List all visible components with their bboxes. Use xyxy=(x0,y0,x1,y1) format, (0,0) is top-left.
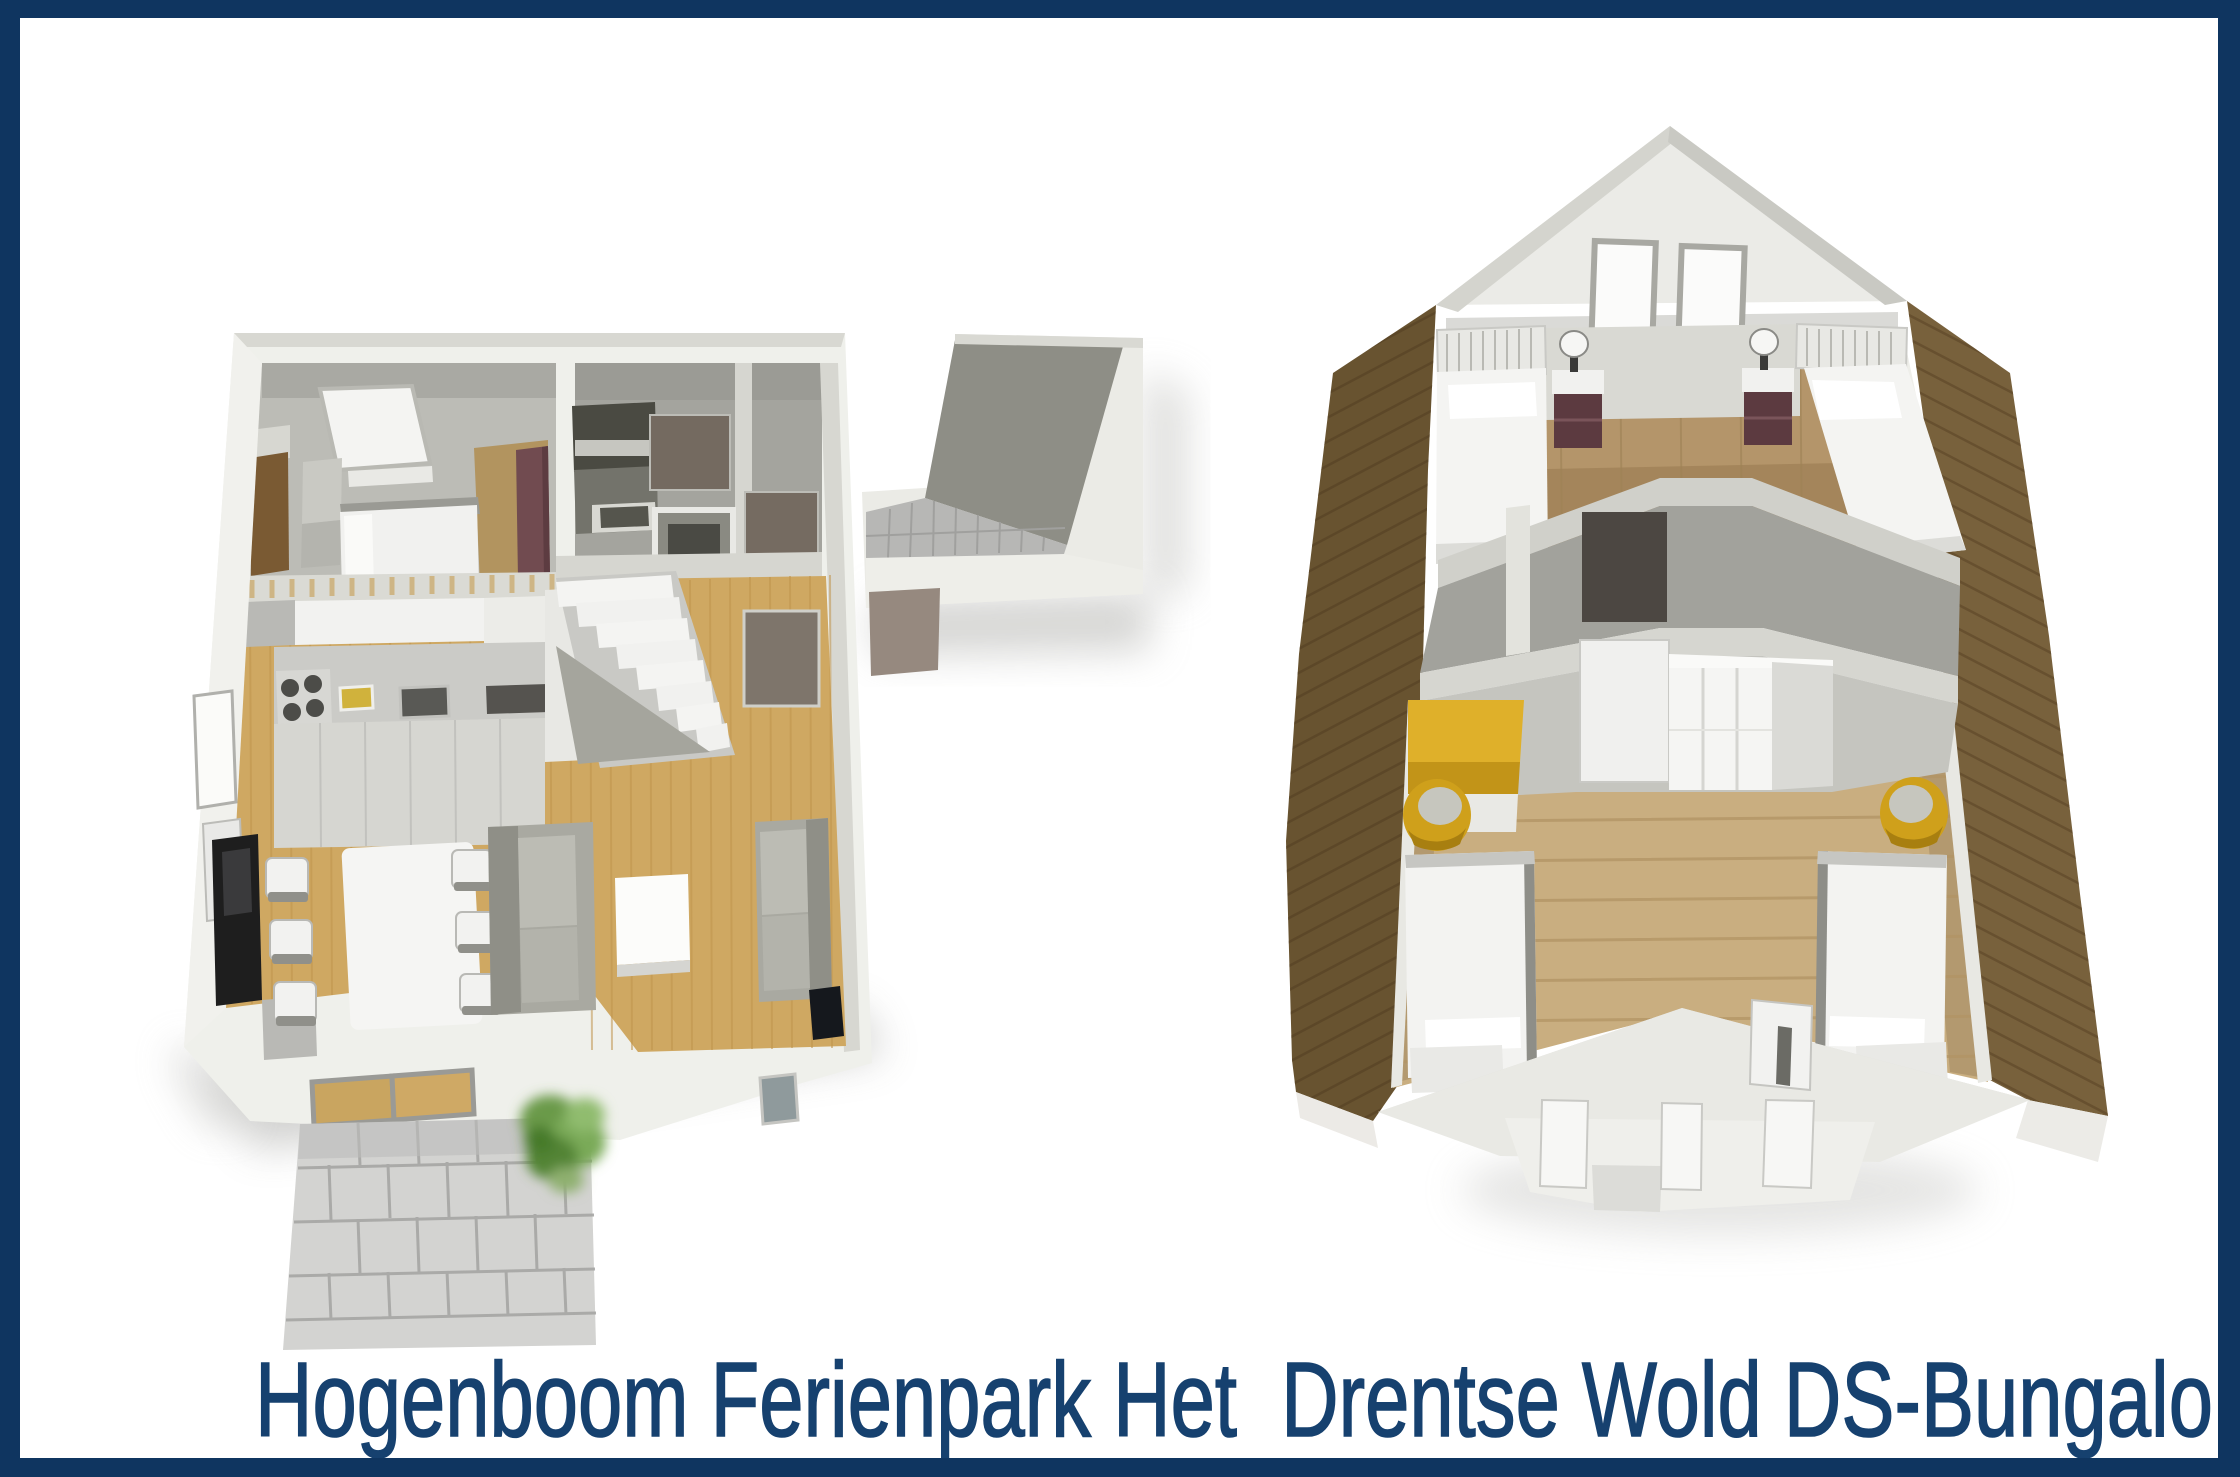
svg-text:Hogenboom Ferienpark Het Dren: Hogenboom Ferienpark Het Drentse Wold DS… xyxy=(255,1341,2213,1459)
